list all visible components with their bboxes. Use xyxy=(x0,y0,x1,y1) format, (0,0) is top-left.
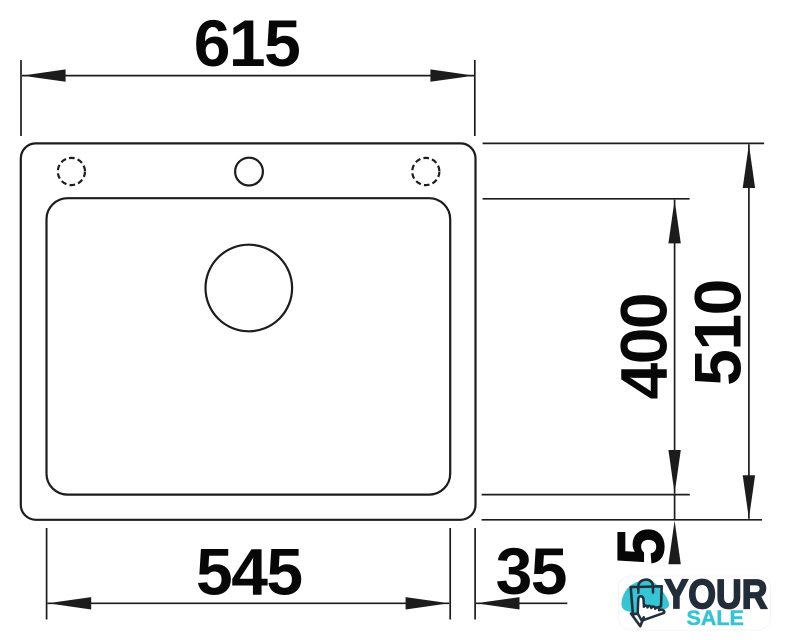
svg-text:615: 615 xyxy=(194,6,300,80)
svg-text:400: 400 xyxy=(607,294,681,400)
svg-text:510: 510 xyxy=(681,280,755,386)
svg-text:35: 35 xyxy=(496,534,566,608)
svg-text:5: 5 xyxy=(604,528,678,565)
svg-text:SALE: SALE xyxy=(687,606,744,630)
svg-text:545: 545 xyxy=(196,534,302,608)
